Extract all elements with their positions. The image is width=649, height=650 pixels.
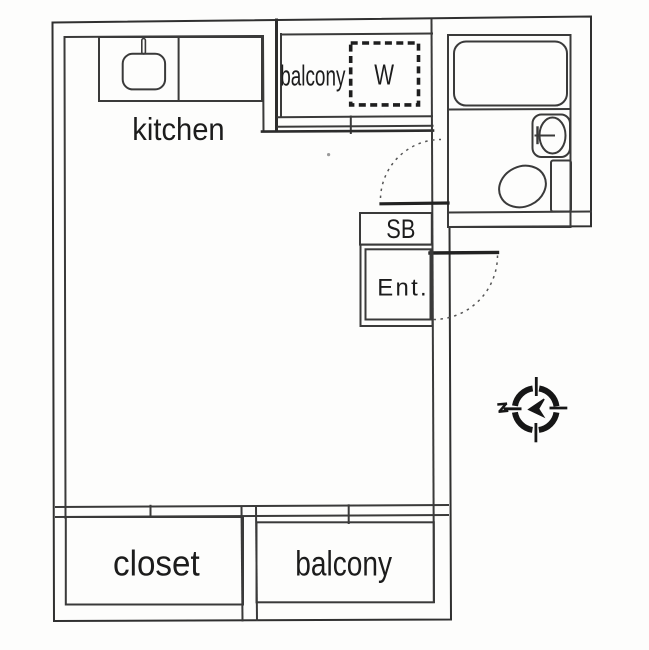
svg-text:balcony: balcony [295,543,392,583]
svg-text:balcony: balcony [280,61,346,93]
svg-text:SB: SB [386,215,415,245]
svg-text:Ent.: Ent. [377,274,429,301]
svg-text:kitchen: kitchen [132,112,224,147]
svg-text:closet: closet [113,543,200,584]
svg-text:W: W [374,59,394,91]
